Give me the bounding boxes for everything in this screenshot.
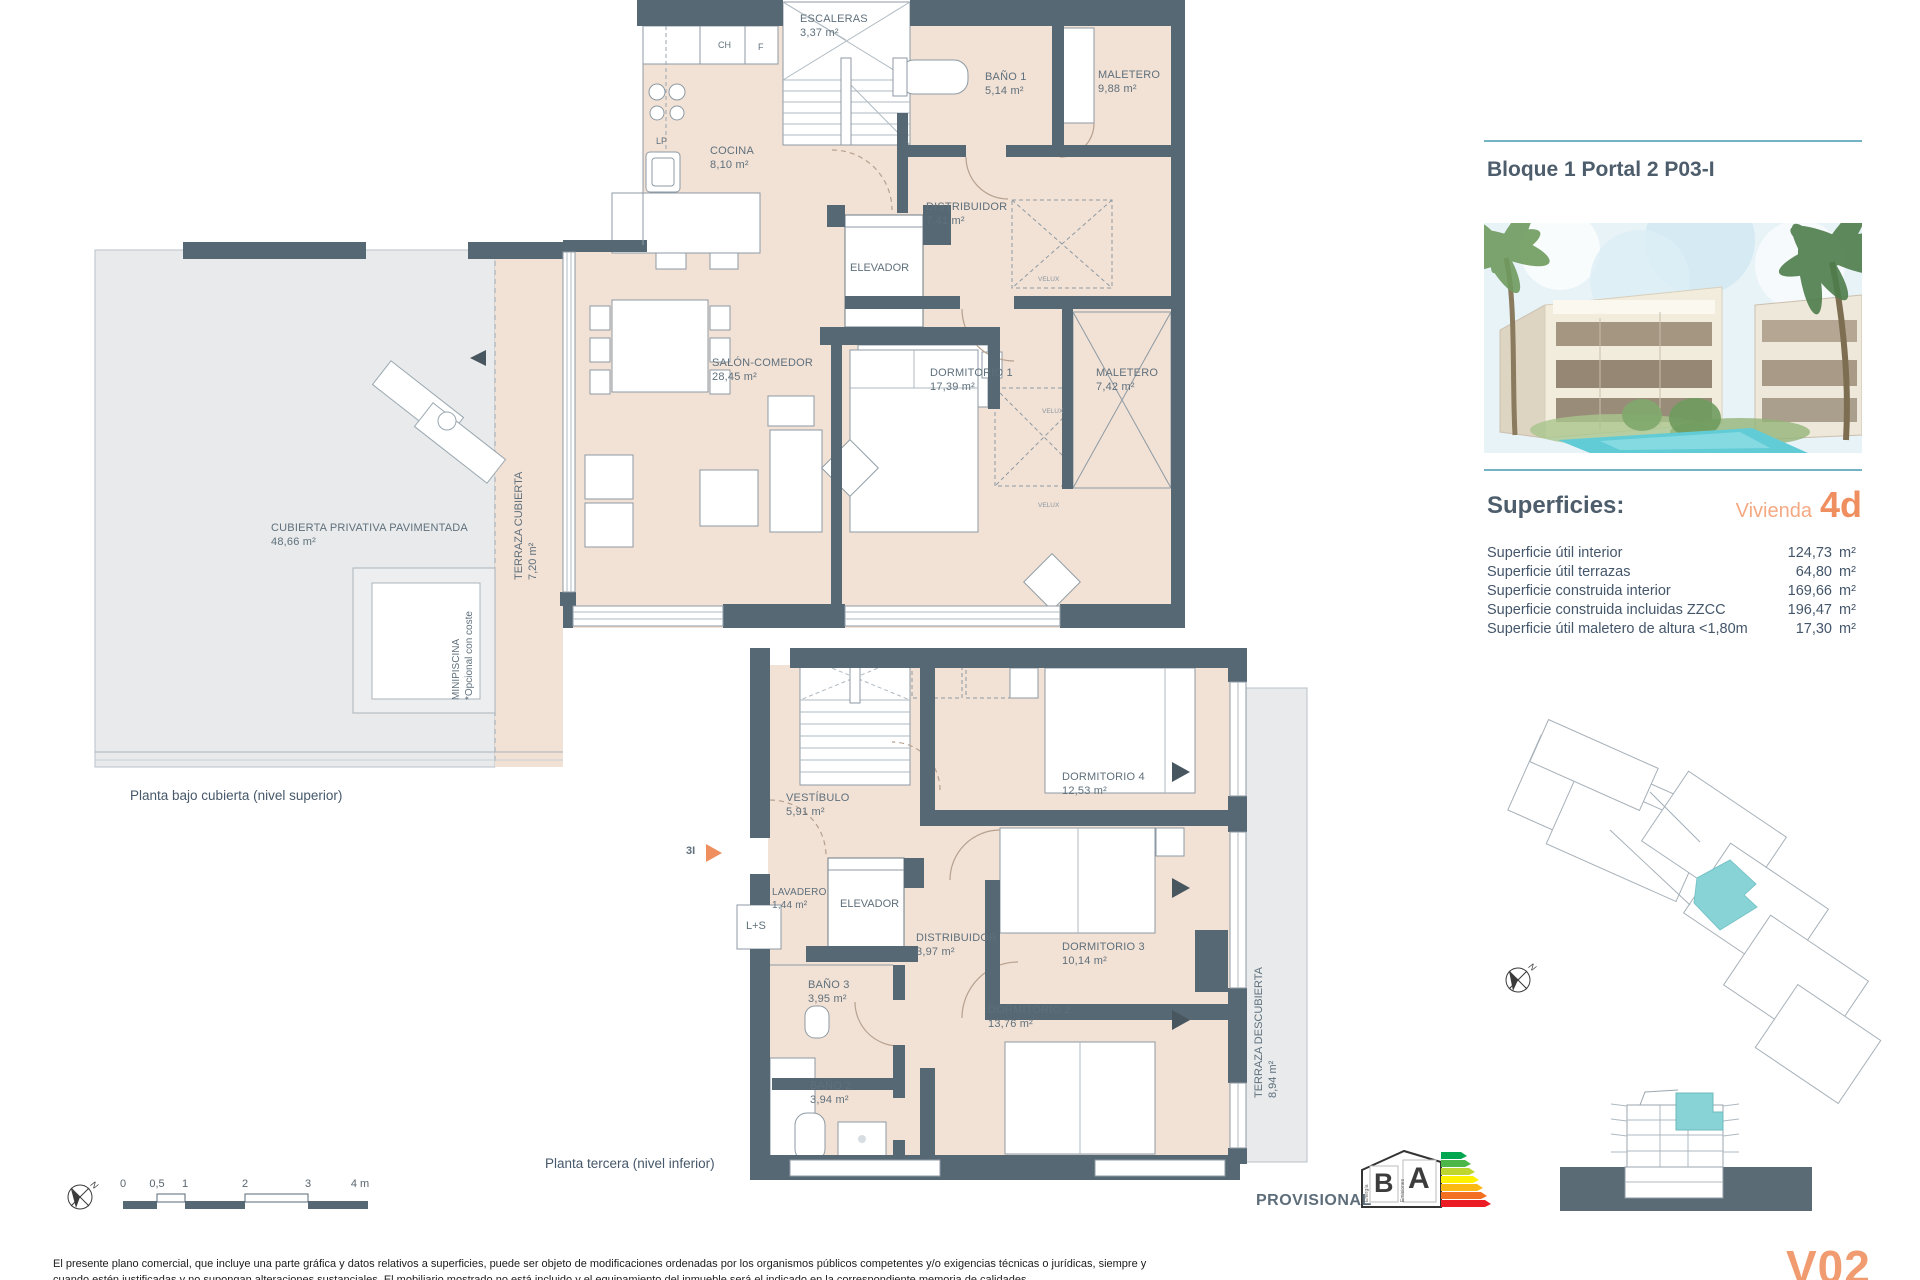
room-label-maletero1: MALETERO 9,88 m² (1098, 68, 1160, 97)
energy-energia-label: Energía (1364, 1184, 1370, 1202)
room-label-distribuidor-upper: DISTRIBUIDOR 7,41 m² (926, 200, 1007, 229)
vivienda-code: 4d (1820, 484, 1862, 526)
room-label-terraza-cubierta: TERRAZA CUBIERTA 7,20 m² (512, 472, 541, 580)
closet-label-ch: CH (718, 40, 731, 50)
room-label-dormitorio1: DORMITORIO 1 17,39 m² (930, 366, 1013, 395)
version-label: V02 (1786, 1240, 1871, 1280)
upper-plan-caption: Planta bajo cubierta (nivel superior) (130, 788, 342, 803)
energy-letter-b: B (1374, 1170, 1394, 1197)
energy-emisiones-label: Emisiones (1400, 1179, 1406, 1202)
scale-tick: 0 (120, 1178, 126, 1190)
room-label-elevador-upper: ELEVADOR (850, 262, 909, 274)
room-label-vestibulo: VESTÍBULO 5,91 m² (786, 791, 850, 820)
room-label-dormitorio2: DORMITORIO 2 13,76 m² (988, 1003, 1071, 1032)
scale-tick: 2 (242, 1178, 248, 1190)
superficies-title: Superficies: (1487, 492, 1624, 520)
room-label-cocina: COCINA 8,10 m² (710, 144, 754, 173)
velux-label: VELUX (1038, 502, 1059, 509)
scale-tick: 1 (182, 1178, 188, 1190)
room-label-cubierta-privativa: CUBIERTA PRIVATIVA PAVIMENTADA 48,66 m² (271, 521, 468, 550)
site-compass-icon (1506, 968, 1530, 992)
entry-arrow-icon (706, 844, 722, 862)
floorplan-sheet: ESCALERAS 3,37 m² CH F LP BAÑO 1 5,14 m²… (0, 0, 1920, 1280)
room-label-dormitorio4: DORMITORIO 4 12,53 m² (1062, 770, 1145, 799)
superficies-table: Superficie útil interior 124,73 m² Super… (1487, 544, 1865, 638)
room-label-distribuidor-lower: DISTRIBUIDOR 3,97 m² (916, 931, 997, 960)
upper-interior (563, 2, 1185, 628)
closet-label-f: F (758, 42, 764, 52)
provisional-label: PROVISIONAL (1256, 1192, 1372, 1210)
scale-tick: 0,5 (149, 1178, 164, 1190)
room-label-escaleras: ESCALERAS 3,37 m² (800, 12, 868, 41)
room-label-maletero2: MALETERO 7,42 m² (1096, 366, 1158, 395)
site-keyplan (1508, 720, 1881, 1104)
vivienda-badge: Vivienda 4d (1720, 484, 1862, 526)
page-title: Bloque 1 Portal 2 P03-I (1487, 158, 1715, 182)
superficie-row: Superficie construida interior 169,66 m² (1487, 582, 1865, 600)
velux-label: VELUX (1042, 408, 1063, 415)
room-label-bano1: BAÑO 1 5,14 m² (985, 70, 1027, 99)
energy-letter-a: A (1408, 1164, 1430, 1194)
scale-bar (123, 1194, 368, 1209)
upper-terrace (95, 242, 566, 767)
closet-label-lp: LP (656, 136, 667, 146)
panel-divider-top (1484, 140, 1862, 142)
plan-graphics (0, 0, 1920, 1280)
superficie-row: Superficie útil interior 124,73 m² (1487, 544, 1865, 562)
room-label-terraza-descubierta: TERRAZA DESCUBIERTA 8,94 m² (1252, 967, 1281, 1098)
superficie-row: Superficie útil maletero de altura <1,80… (1487, 620, 1865, 638)
building-photo (1459, 185, 1887, 453)
superficie-row: Superficie construida incluidas ZZCC 196… (1487, 601, 1865, 619)
room-label-elevador-lower: ELEVADOR (840, 898, 899, 910)
room-label-dormitorio3: DORMITORIO 3 10,14 m² (1062, 940, 1145, 969)
room-label-bano2: BAÑO 2 3,94 m² (810, 1079, 852, 1108)
lower-plan-caption: Planta tercera (nivel inferior) (545, 1156, 715, 1171)
room-label-minipiscina: MINIPISCINA *Opcional con coste (450, 611, 476, 700)
footer-disclaimer-line2: cuando estén justificadas y no supongan … (53, 1274, 1030, 1280)
room-label-salon: SALÓN-COMEDOR 28,45 m² (712, 356, 813, 385)
room-label-lavadero: LAVADERO 1,44 m² (772, 886, 827, 912)
highlighted-unit-section (1676, 1093, 1723, 1130)
velux-label: VELUX (1038, 276, 1059, 283)
vivienda-label: Vivienda (1736, 500, 1812, 523)
panel-divider-mid (1484, 469, 1862, 471)
room-label-bano3: BAÑO 3 3,95 m² (808, 978, 850, 1007)
scale-tick: 3 (305, 1178, 311, 1190)
scale-compass-icon (68, 1185, 92, 1209)
footer-disclaimer-line1: El presente plano comercial, que incluye… (53, 1258, 1146, 1270)
closet-label-ls: L+S (746, 920, 766, 932)
scale-tick: 4 m (351, 1178, 369, 1190)
entry-label: 3I (686, 845, 695, 857)
section-diagram (1560, 1090, 1812, 1211)
superficie-row: Superficie útil terrazas 64,80 m² (1487, 563, 1865, 581)
